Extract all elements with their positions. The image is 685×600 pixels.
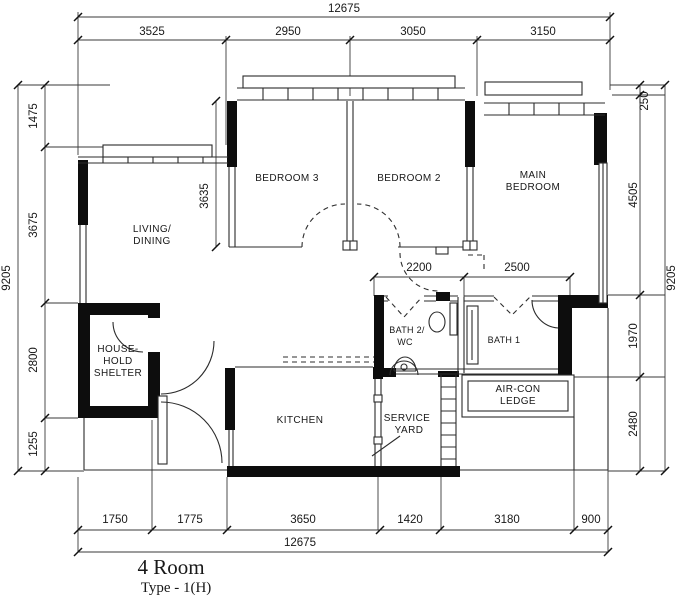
wall-bath1-right (558, 295, 572, 377)
dim-bedroom3-depth: 3635 (199, 183, 211, 209)
door-hinge-mark (374, 395, 382, 402)
door-foot (470, 241, 477, 250)
dim-bottom-total: 12675 (284, 537, 316, 549)
window-living-left (80, 225, 86, 303)
wall-shelter-left (78, 303, 90, 418)
dim-bottom-4: 1420 (397, 514, 423, 526)
label-living-2: DINING (133, 236, 170, 247)
dim-bottom-2: 1775 (177, 514, 203, 526)
label-bedroom2: BEDROOM 2 (377, 173, 441, 184)
door-foot (343, 241, 350, 250)
label-living-1: LIVING/ (133, 224, 171, 235)
dim-top-2: 2950 (275, 26, 301, 38)
dim-left-3: 2800 (28, 347, 40, 373)
wall-shelter-bottom (78, 406, 160, 418)
label-shelter-3: SHELTER (94, 368, 142, 379)
wall-bedroom2-main-divider (465, 101, 475, 167)
window-ledge-living (103, 145, 212, 157)
label-kitchen: KITCHEN (277, 415, 324, 426)
door-arc-bath1 (532, 300, 558, 328)
wall-shelter-top (78, 303, 160, 315)
dim-right-total: 9205 (666, 265, 678, 291)
label-bath2-1: BATH 2/ (389, 325, 425, 335)
dim-top-3: 3050 (400, 26, 426, 38)
door-arc-entrance-lower (161, 402, 222, 463)
dim-left-1: 1475 (28, 103, 40, 129)
door-swing-bath1 (494, 297, 530, 315)
label-main-bedroom-1: MAIN (520, 170, 547, 181)
dim-top-1: 3525 (139, 26, 165, 38)
dim-left-2: 3675 (28, 212, 40, 238)
window-ledge-bedrooms (243, 76, 455, 88)
door-arc-bedroom2 (357, 204, 400, 247)
dim-bottom-5: 3180 (494, 514, 520, 526)
door-leaf-bath2 (450, 303, 457, 335)
window-ledge-main-bedroom (485, 82, 582, 95)
label-bedroom3: BEDROOM 3 (255, 173, 319, 184)
title-type: Type - 1(H) (141, 580, 212, 596)
label-aircon-1: AIR-CON (495, 384, 540, 395)
label-aircon-2: LEDGE (500, 396, 536, 407)
label-shelter-2: HOLD (103, 356, 132, 367)
dashed-corner (468, 255, 484, 270)
label-bath2-2: WC (397, 337, 413, 347)
wall-bath-top-mid (436, 292, 450, 301)
dim-bottom-6: 900 (581, 514, 600, 526)
label-main-bedroom-2: BEDROOM (506, 182, 560, 193)
door-arc-entrance-upper (161, 341, 214, 394)
dim-right-4: 2480 (628, 411, 640, 437)
drawing-title: 4 Room Type - 1(H) (137, 555, 211, 596)
dim-top-4: 3150 (530, 26, 556, 38)
overhead-line-kitchen (283, 357, 374, 362)
floor-plan-canvas: 12675 3525 2950 3050 3150 9205 1475 3675… (0, 0, 685, 600)
wall-notch (436, 247, 448, 254)
title-name: 4 Room (137, 555, 204, 579)
wall-bath-bottom-left (374, 368, 396, 377)
dim-left-total: 9205 (1, 265, 13, 291)
door-arc-bedroom3 (302, 204, 345, 247)
dim-top-total: 12675 (328, 3, 360, 15)
dim-right-2: 4505 (628, 182, 640, 208)
dim-bottom-3: 3650 (290, 514, 316, 526)
dim-hall-b: 2500 (504, 262, 530, 274)
label-bath1: BATH 1 (488, 335, 521, 345)
wall-living-left (78, 160, 88, 225)
door-leaf-entrance (158, 396, 167, 464)
floor-plan-drawing: 12675 3525 2950 3050 3150 9205 1475 3675… (0, 0, 685, 600)
wall-kitchen-left (225, 368, 235, 430)
label-service-yard-2: YARD (395, 425, 424, 436)
dim-right-1: 250 (639, 91, 651, 110)
door-swing-bath2 (386, 297, 422, 317)
wall-bottom (227, 466, 460, 477)
door-hinge-mark (374, 437, 382, 444)
louver-window (441, 375, 456, 466)
dim-left-4: 1255 (28, 431, 40, 457)
label-service-yard-1: SERVICE (384, 413, 431, 424)
dim-bottom-1: 1750 (102, 514, 128, 526)
dim-right-3: 1970 (628, 323, 640, 349)
wall-bedroom3-left (227, 101, 237, 167)
door-foot (463, 241, 470, 250)
basin-symbol (429, 312, 445, 332)
dim-hall-a: 2200 (406, 262, 432, 274)
door-foot (350, 241, 357, 250)
label-shelter-1: HOUSE- (97, 344, 138, 355)
wall-bath2-left (374, 295, 384, 375)
wall-main-bedroom-right (594, 113, 607, 165)
